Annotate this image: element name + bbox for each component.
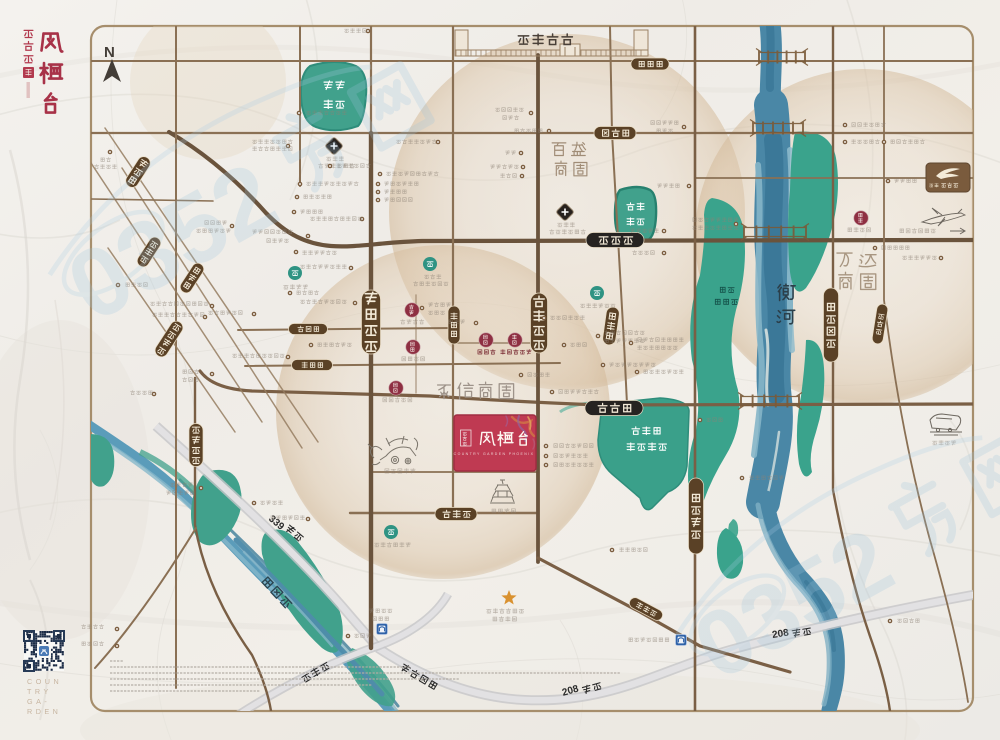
svg-text:TRY: TRY	[27, 687, 52, 696]
svg-text:COUNTRY GARDEN PHOENIX: COUNTRY GARDEN PHOENIX	[454, 452, 535, 456]
svg-text:N: N	[104, 44, 115, 61]
svg-text:RDEN: RDEN	[27, 707, 61, 716]
svg-text:GA-: GA-	[27, 697, 50, 706]
svg-text:COUN: COUN	[27, 677, 62, 686]
